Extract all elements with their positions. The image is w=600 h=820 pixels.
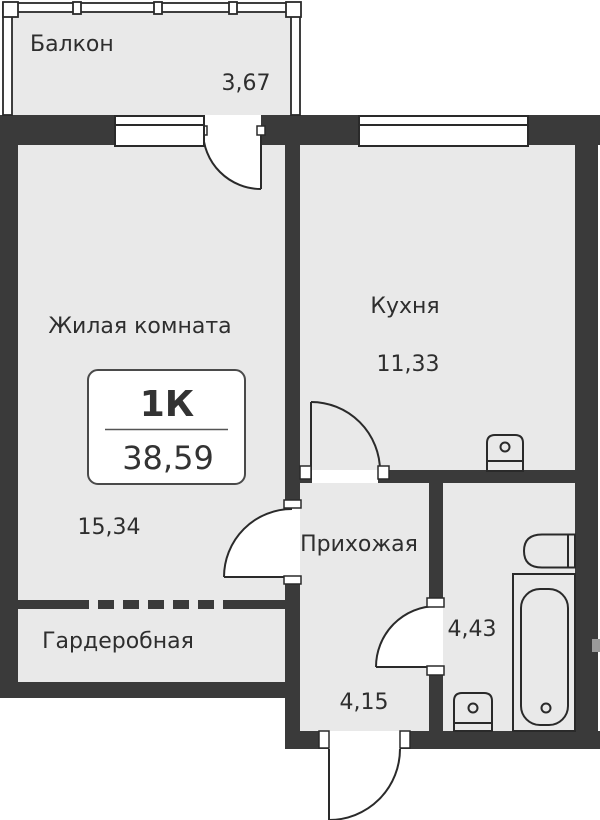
badge-total-area: 38,59 (122, 439, 214, 477)
balcony-glazing-top (3, 3, 297, 12)
balcony-glazing-right (291, 12, 300, 115)
living-door-jamb-bottom (284, 576, 301, 584)
balcony-floor (12, 11, 292, 115)
balcony-corner-post-left (3, 2, 18, 17)
living-hall-wall-upper (285, 115, 300, 507)
wardrobe-partition-stub-left (18, 600, 73, 609)
left-exterior-wall (0, 115, 18, 698)
living-hall-wall-lower (285, 579, 300, 731)
kitchen-area: 11,33 (377, 352, 440, 377)
entrance-door-opening (329, 731, 400, 749)
balcony-door-jamb-right (257, 126, 265, 135)
floor-plan-svg: Балкон 3,67 Жилая комната 15,34 Кухня 11… (0, 0, 600, 820)
bathroom-door-jamb-bottom (427, 666, 444, 675)
wardrobe-label: Гардеробная (42, 629, 194, 654)
kitchen-window (359, 116, 528, 146)
kitchen-bottom-wall-right (378, 470, 575, 483)
wall-vent-tab (592, 639, 600, 652)
entrance-door-swing (329, 749, 400, 820)
floor-plan: Балкон 3,67 Жилая комната 15,34 Кухня 11… (0, 0, 600, 820)
kitchen-door-opening (312, 470, 378, 483)
balcony-label: Балкон (30, 32, 114, 57)
balcony-corner-post-right (286, 2, 301, 17)
wardrobe-partition-stub-right (236, 600, 285, 609)
hallway-area: 4,15 (340, 690, 389, 715)
balcony-glazing-left (3, 12, 12, 115)
kitchen-floor (300, 116, 575, 470)
balcony-mullion-3 (229, 2, 237, 14)
hallway-label: Прихожая (300, 532, 418, 557)
kitchen-label: Кухня (370, 294, 439, 319)
bathroom-wall-lower (429, 674, 443, 731)
living-room-area: 15,34 (78, 515, 141, 540)
balcony-mullion-1 (73, 2, 81, 14)
living-room-window (115, 116, 204, 146)
badge-type: 1К (140, 384, 194, 425)
balcony-mullion-2 (154, 2, 162, 14)
right-exterior-wall (575, 115, 598, 749)
bathroom-door-jamb-top (427, 598, 444, 607)
living-door-jamb-top (284, 500, 301, 508)
kitchen-door-jamb-left (300, 466, 311, 479)
kitchen-door-jamb-right (378, 466, 389, 479)
entrance-door-jamb-right (400, 731, 410, 748)
bathroom-wall-upper (429, 483, 443, 599)
apartment-badge: 1К 38,59 (88, 370, 245, 484)
entrance-door-jamb-left (319, 731, 329, 748)
bathroom-area: 4,43 (448, 617, 497, 642)
wardrobe-bottom-wall (0, 682, 300, 698)
balcony-area: 3,67 (222, 71, 271, 96)
living-room-label: Жилая комната (48, 314, 231, 339)
